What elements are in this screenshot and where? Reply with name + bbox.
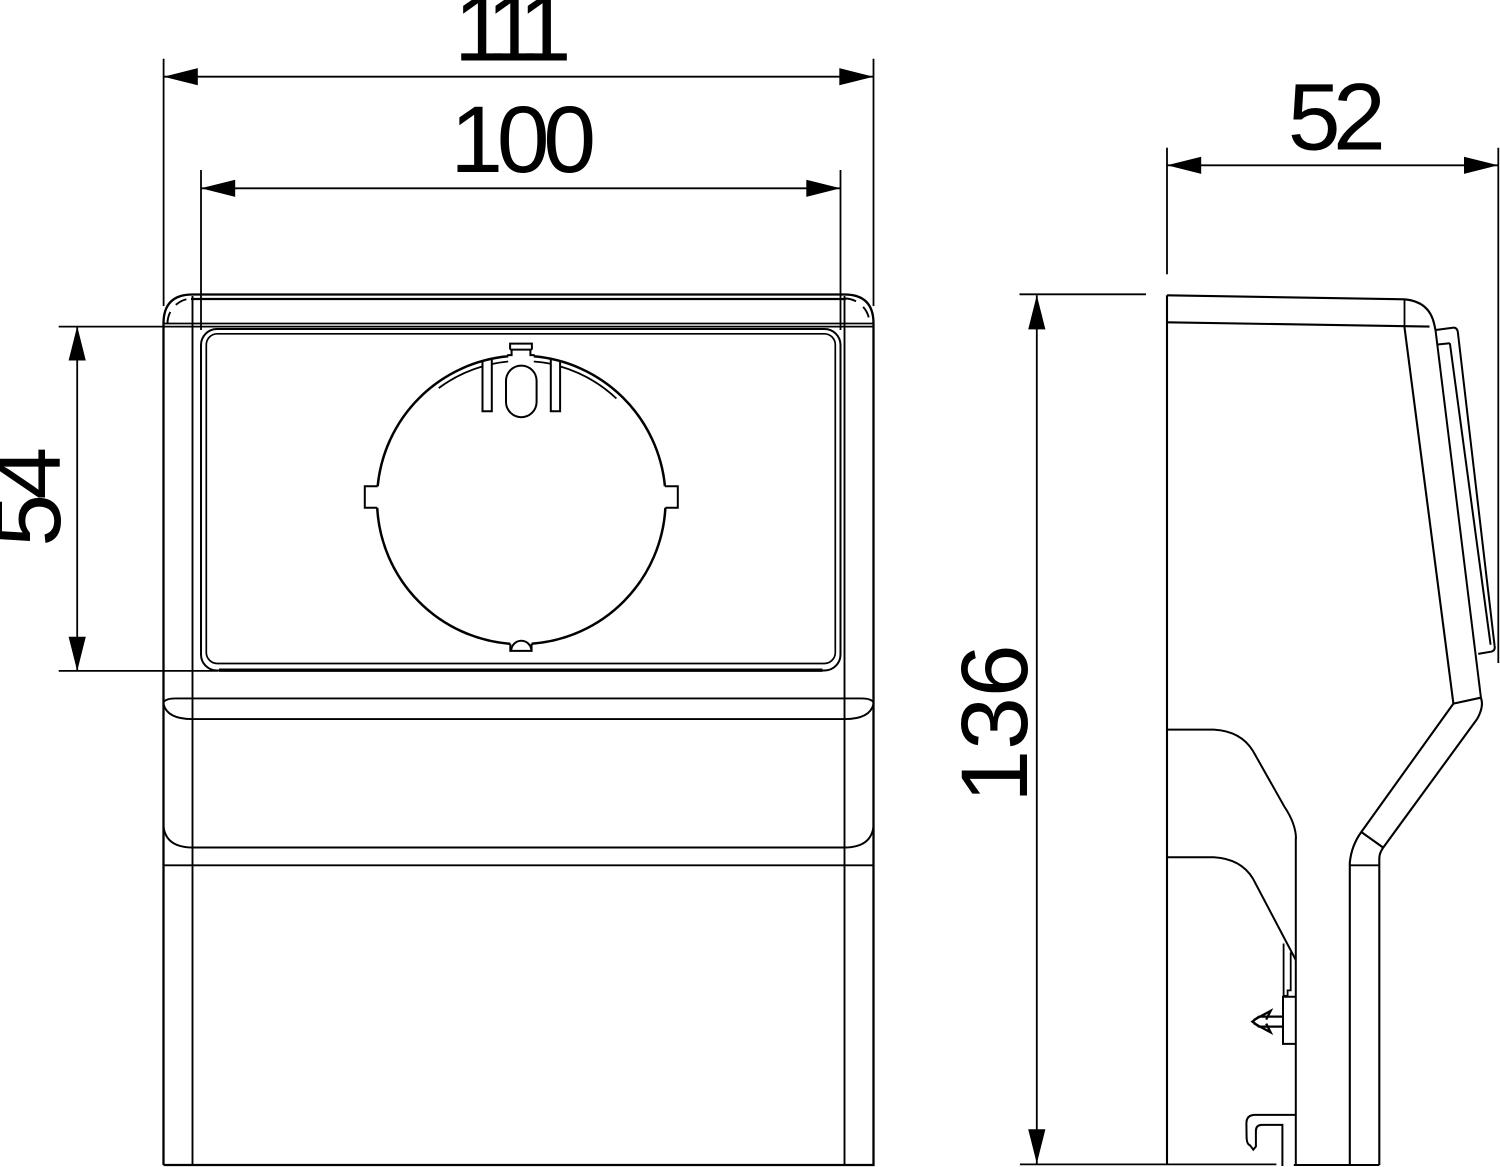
svg-text:136: 136 xyxy=(942,644,1048,803)
svg-text:100: 100 xyxy=(450,87,593,193)
svg-text:54: 54 xyxy=(0,449,81,547)
svg-text:52: 52 xyxy=(1288,65,1382,171)
svg-text:111: 111 xyxy=(454,0,568,82)
